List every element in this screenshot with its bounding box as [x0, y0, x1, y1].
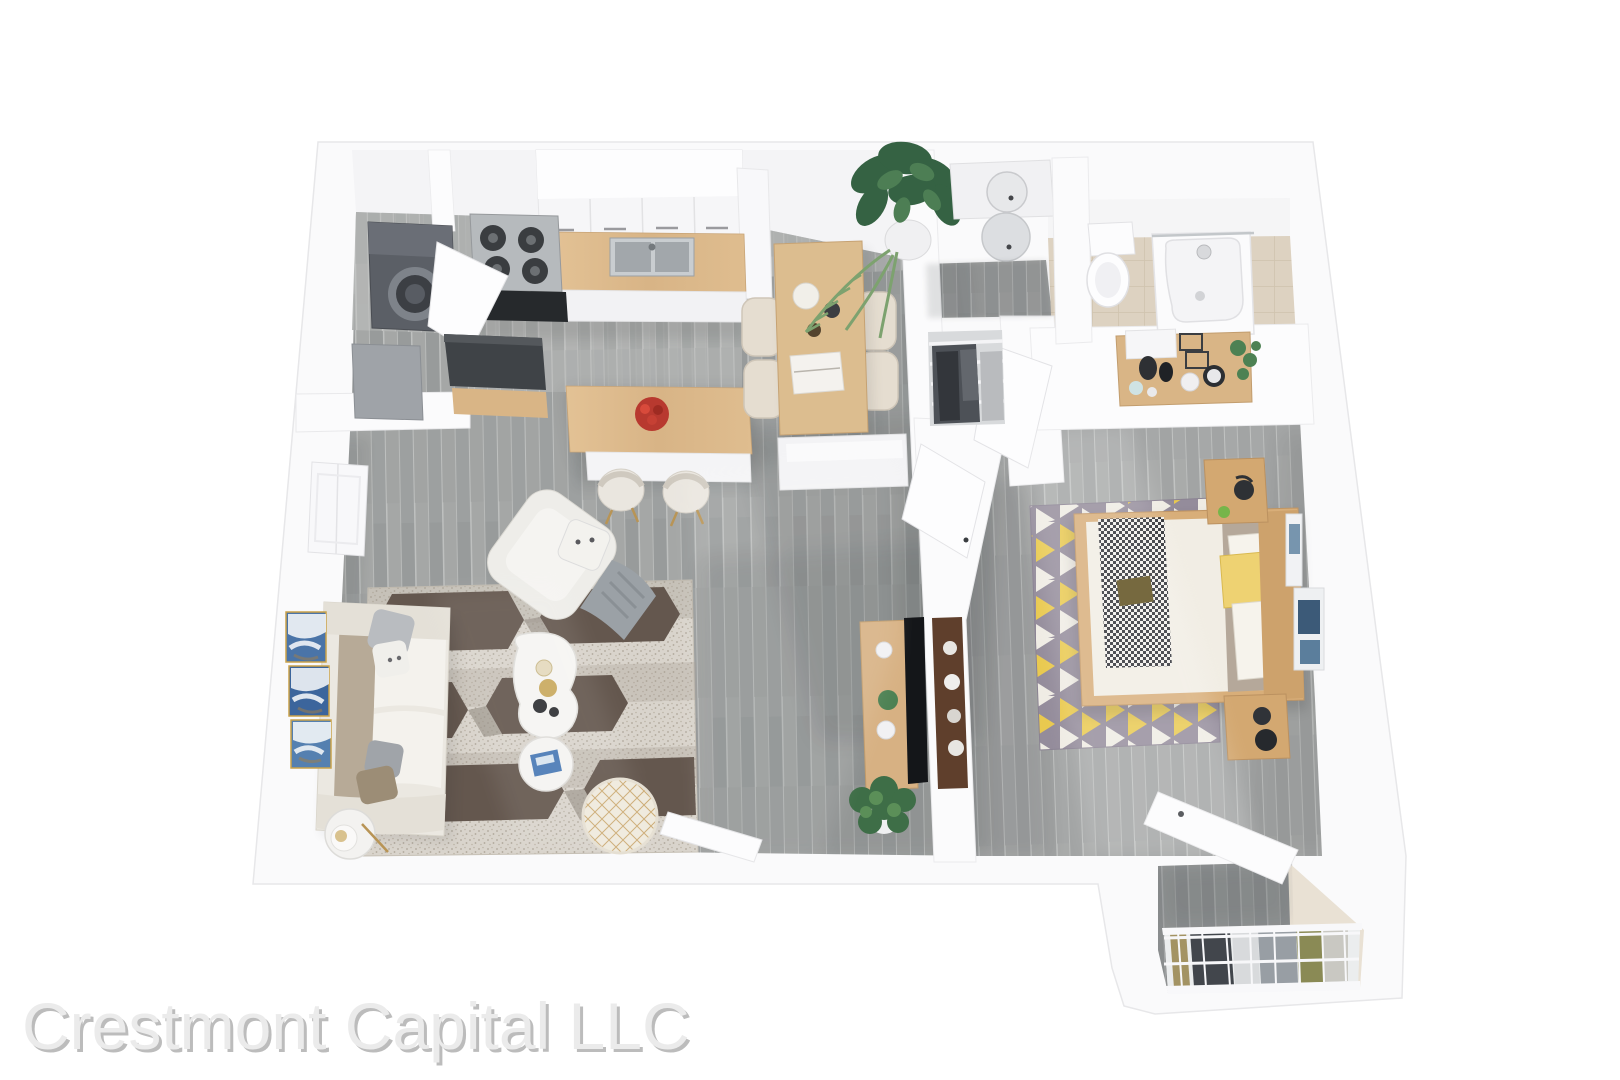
svg-text:Crestmont Capital LLC: Crestmont Capital LLC	[22, 989, 690, 1063]
